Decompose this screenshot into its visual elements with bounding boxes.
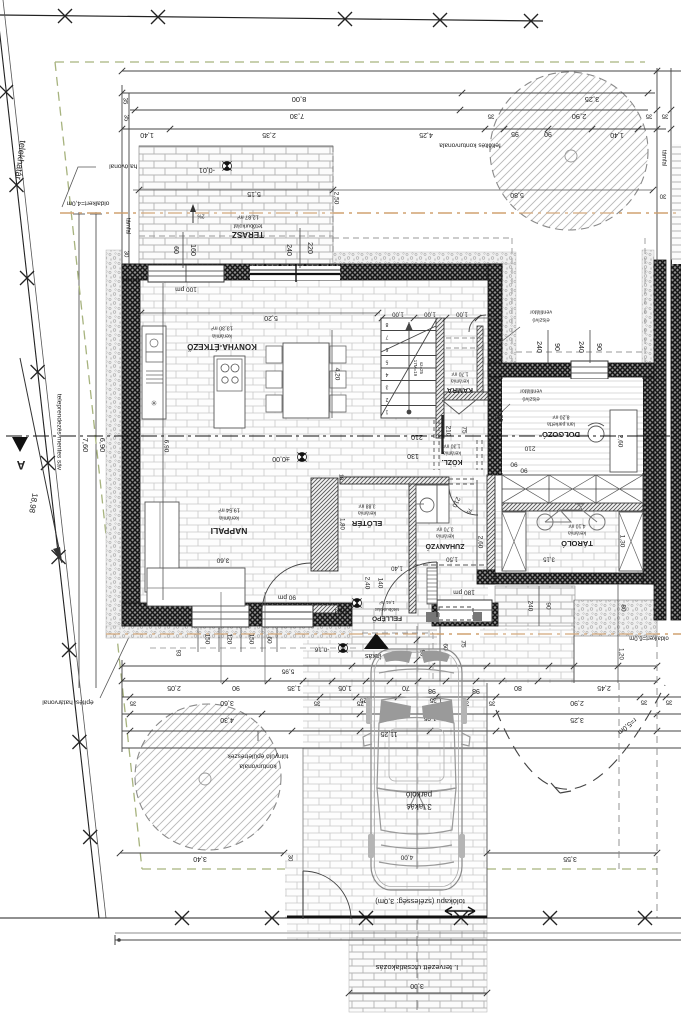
svg-text:150: 150 [203, 634, 210, 645]
svg-text:90: 90 [544, 602, 551, 610]
svg-text:12,87 m²: 12,87 m² [237, 214, 259, 220]
svg-text:220: 220 [306, 242, 313, 254]
svg-text:2,90: 2,90 [572, 112, 587, 121]
svg-text:kerámia: kerámia [436, 533, 454, 539]
svg-text:3,25: 3,25 [570, 716, 584, 723]
svg-text:6,90: 6,90 [162, 440, 169, 453]
svg-text:4,10 m²: 4,10 m² [568, 523, 585, 529]
svg-text:1,00: 1,00 [392, 310, 404, 316]
svg-text:támfal: támfal [124, 218, 130, 234]
svg-text:3,60: 3,60 [220, 699, 234, 706]
svg-text:80: 80 [619, 604, 626, 612]
svg-text:1,30 m²: 1,30 m² [443, 443, 460, 449]
svg-text:30: 30 [659, 192, 666, 198]
svg-text:130: 130 [407, 452, 419, 459]
svg-text:-0,16: -0,16 [314, 645, 329, 652]
svg-text:60: 60 [172, 246, 179, 254]
svg-text:3: 3 [385, 384, 388, 390]
svg-text:3.lakás: 3.lakás [406, 802, 431, 811]
svg-text:-0,01: -0,01 [199, 166, 215, 173]
svg-text:5,20: 5,20 [264, 314, 278, 321]
svg-text:teleprendezés-mentes sáv: teleprendezés-mentes sáv [55, 394, 62, 471]
svg-text:35: 35 [665, 698, 672, 704]
svg-text:13,30 m²: 13,30 m² [211, 325, 233, 331]
svg-text:210: 210 [444, 426, 451, 437]
svg-text:kerámia: kerámia [218, 515, 239, 521]
svg-text:30: 30 [286, 855, 292, 862]
svg-text:7,30: 7,30 [290, 112, 305, 121]
svg-text:kerámia: kerámia [451, 378, 469, 384]
svg-text:100 pm: 100 pm [175, 285, 197, 292]
svg-text:2,05: 2,05 [167, 684, 181, 691]
svg-text:240: 240 [285, 244, 292, 256]
svg-text:5,15: 5,15 [247, 190, 261, 197]
svg-text:konturvonala: konturvonala [239, 762, 277, 769]
svg-text:35: 35 [488, 699, 495, 705]
svg-text:tetőburkolat: tetőburkolat [374, 607, 398, 612]
svg-text:✳: ✳ [151, 399, 158, 408]
svg-text:2,60: 2,60 [616, 435, 623, 448]
svg-text:1,35: 1,35 [287, 684, 301, 691]
svg-text:építési határvonal: építési határvonal [42, 698, 94, 705]
svg-text:±0,00: ±0,00 [272, 455, 290, 462]
svg-text:95: 95 [511, 130, 519, 137]
svg-text:75: 75 [460, 426, 467, 434]
svg-text:2,60: 2,60 [476, 536, 483, 549]
svg-text:35: 35 [645, 112, 652, 118]
svg-text:140: 140 [376, 578, 383, 589]
svg-text:1,00: 1,00 [456, 310, 468, 316]
svg-text:240: 240 [526, 601, 533, 612]
svg-text:ventilátor: ventilátor [530, 309, 552, 315]
svg-text:3,40: 3,40 [193, 855, 207, 862]
svg-text:4,20: 4,20 [333, 368, 340, 381]
svg-text:3,60: 3,60 [216, 556, 229, 563]
svg-text:7,60: 7,60 [81, 438, 90, 453]
svg-text:240: 240 [535, 341, 542, 353]
svg-text:TERASZ: TERASZ [232, 230, 264, 239]
svg-text:2,50: 2,50 [332, 192, 339, 205]
svg-text:ELŐTÉR: ELŐTÉR [351, 519, 382, 528]
svg-text:3,25: 3,25 [585, 95, 600, 104]
svg-text:NAPPALI: NAPPALI [211, 526, 248, 536]
svg-text:240: 240 [577, 341, 584, 353]
svg-text:2,45: 2,45 [597, 684, 611, 691]
svg-text:DOLGOZÓ: DOLGOZÓ [542, 430, 580, 439]
svg-text:35: 35 [129, 699, 136, 705]
svg-text:2,40: 2,40 [363, 577, 370, 590]
svg-text:90: 90 [520, 466, 528, 473]
svg-text:4,00: 4,00 [400, 853, 413, 860]
svg-text:5,80: 5,80 [510, 191, 524, 198]
svg-text:parkoló: parkoló [405, 790, 432, 799]
svg-text:160: 160 [189, 244, 196, 256]
svg-text:túlnyúló épületrészek: túlnyúló épületrészek [227, 752, 289, 759]
svg-text:210: 210 [524, 444, 535, 451]
svg-text:-0,01: -0,01 [333, 607, 348, 614]
svg-text:75: 75 [459, 640, 466, 648]
svg-text:1,05: 1,05 [338, 684, 352, 691]
svg-text:10: 10 [338, 474, 344, 480]
svg-text:támfal: támfal [660, 150, 666, 166]
svg-text:kerámia: kerámia [568, 530, 586, 536]
svg-text:4,25: 4,25 [419, 131, 433, 138]
svg-text:6,90: 6,90 [98, 438, 107, 453]
svg-text:35: 35 [640, 698, 647, 704]
svg-text:1,70 m²: 1,70 m² [451, 371, 468, 377]
svg-text:oldalkert=4,0m: oldalkert=4,0m [67, 199, 110, 206]
svg-text:tetőburkolat: tetőburkolat [233, 223, 262, 229]
svg-text:30: 30 [122, 251, 128, 258]
svg-text:1,40: 1,40 [391, 564, 403, 570]
svg-text:35: 35 [487, 112, 494, 118]
svg-text:98: 98 [428, 687, 436, 694]
svg-text:3,88 m²: 3,88 m² [358, 503, 375, 509]
svg-text:ZUHANYZÓ: ZUHANYZÓ [425, 542, 464, 551]
svg-text:4: 4 [385, 371, 388, 377]
svg-text:KÖZL.: KÖZL. [441, 458, 462, 467]
svg-text:19,54 m²: 19,54 m² [218, 507, 240, 513]
svg-text:3,70 m²: 3,70 m² [436, 526, 453, 532]
svg-text:KONYHA-ÉTKEZŐ: KONYHA-ÉTKEZŐ [187, 342, 257, 351]
svg-text:180 pm: 180 pm [453, 588, 475, 595]
svg-text:80: 80 [514, 684, 522, 691]
svg-text:8,20 m²: 8,20 m² [552, 414, 569, 420]
svg-text:kerámia: kerámia [358, 510, 376, 516]
svg-text:ventilátor: ventilátor [520, 388, 542, 394]
svg-text:90: 90 [595, 343, 602, 351]
svg-text:FELLÉPŐ: FELLÉPŐ [372, 614, 402, 623]
svg-text:2,35: 2,35 [262, 131, 276, 138]
svg-text:4,30: 4,30 [220, 716, 234, 723]
svg-text:93: 93 [174, 650, 180, 657]
svg-text:1,00: 1,00 [424, 310, 436, 316]
svg-text:1,40: 1,40 [610, 131, 624, 138]
svg-text:1,50: 1,50 [446, 555, 458, 561]
svg-text:90 pm: 90 pm [278, 593, 296, 600]
svg-text:90: 90 [553, 343, 560, 351]
svg-text:A: A [16, 458, 25, 472]
svg-text:35: 35 [313, 699, 320, 705]
svg-text:1,30: 1,30 [618, 535, 625, 548]
svg-text:60: 60 [265, 636, 272, 644]
svg-text:1,30: 1,30 [487, 441, 493, 453]
svg-text:98: 98 [472, 687, 480, 694]
svg-text:1,61 m²: 1,61 m² [379, 600, 395, 605]
svg-text:5: 5 [385, 359, 388, 365]
svg-text:1,55: 1,55 [496, 410, 502, 422]
svg-text:8,00: 8,00 [292, 95, 307, 104]
svg-text:TÁROLÓ: TÁROLÓ [561, 539, 593, 548]
svg-text:1,80: 1,80 [338, 518, 344, 530]
svg-text:90: 90 [510, 460, 518, 467]
svg-text:sz=25: sz=25 [419, 362, 424, 375]
svg-text:7: 7 [385, 334, 388, 340]
svg-text:lam.parketta: lam.parketta [547, 421, 575, 427]
svg-text:1: 1 [385, 409, 388, 415]
svg-text:KAMRA: KAMRA [447, 386, 473, 393]
svg-text:3,15: 3,15 [543, 555, 555, 561]
svg-text:35: 35 [121, 98, 127, 105]
svg-text:8: 8 [385, 321, 388, 327]
svg-text:1,40: 1,40 [140, 131, 154, 138]
svg-text:210: 210 [411, 433, 423, 440]
svg-text:3,55: 3,55 [563, 855, 577, 862]
svg-text:elszívó: elszívó [522, 396, 539, 402]
svg-text:feltöltés konturvonala: feltöltés konturvonala [439, 141, 501, 148]
svg-text:elszívó: elszívó [532, 317, 549, 323]
svg-text:17M=19: 17M=19 [413, 360, 418, 377]
svg-text:tolókapu (szélesség: 3,0m): tolókapu (szélesség: 3,0m) [375, 897, 465, 906]
svg-text:kerámia: kerámia [443, 450, 461, 456]
svg-text:35: 35 [122, 115, 128, 122]
svg-text:90: 90 [232, 684, 240, 691]
svg-text:90: 90 [544, 130, 552, 137]
svg-text:2: 2 [385, 396, 388, 402]
svg-text:70: 70 [402, 684, 410, 691]
svg-text:35: 35 [661, 112, 668, 118]
svg-text:150: 150 [247, 634, 254, 645]
svg-text:kerámia: kerámia [211, 333, 232, 339]
svg-text:5,95: 5,95 [281, 667, 294, 674]
svg-text:2,90: 2,90 [570, 699, 584, 706]
svg-text:120: 120 [225, 634, 232, 645]
